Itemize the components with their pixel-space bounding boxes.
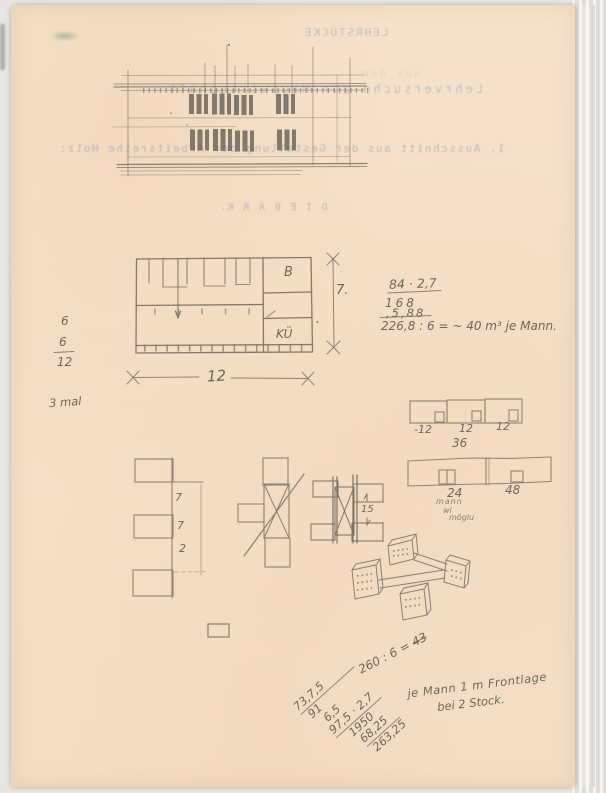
strip-sketch <box>408 457 551 486</box>
plan-dimension-marks <box>127 253 340 385</box>
crossed-block-sketch <box>238 458 304 567</box>
stack-gap-1: 7 <box>175 491 182 504</box>
fraction-numerator-2: 6 <box>59 335 67 349</box>
rails-dim-label: 15 <box>361 504 374 515</box>
small-rect-sketch <box>208 624 229 637</box>
times-note: 3 mal <box>49 394 82 410</box>
stack-gap-3: 2 <box>179 542 186 555</box>
stack-sketch <box>133 458 205 598</box>
strip-dim-2: 48 <box>505 483 520 497</box>
room-label-b: B <box>284 265 293 280</box>
fraction-numerator-1: 6 <box>61 314 69 328</box>
volume-calc-result: 226,8 : 6 = ~ 40 m³ je Mann. <box>381 319 557 333</box>
fraction-denominator: 12 <box>57 355 72 369</box>
volume-calc-line1: 84 · 2,7 <box>389 275 437 292</box>
plan-height-dim-label: 7. <box>336 283 348 298</box>
scanned-sketch-page: { "colors": { "paper": "#f5e2ca", "penci… <box>0 0 606 793</box>
room-label-ku: KÜ <box>276 327 292 341</box>
strip-note-1: mann <box>436 497 463 506</box>
plan-width-dim-label: 12 <box>207 367 227 386</box>
unit-dim-2: 12 <box>459 422 473 435</box>
volume-calc-line3: ,5,88 <box>386 306 425 320</box>
unit-dim-3: 12 <box>496 420 510 433</box>
unit-total: 36 <box>452 436 467 450</box>
isometric-sketch <box>352 534 470 620</box>
stack-gap-2: 7 <box>177 519 184 532</box>
strip-note-3: möglu <box>449 513 474 522</box>
elevation-sketch <box>112 44 368 176</box>
unit-dim-1: -12 <box>414 423 432 436</box>
